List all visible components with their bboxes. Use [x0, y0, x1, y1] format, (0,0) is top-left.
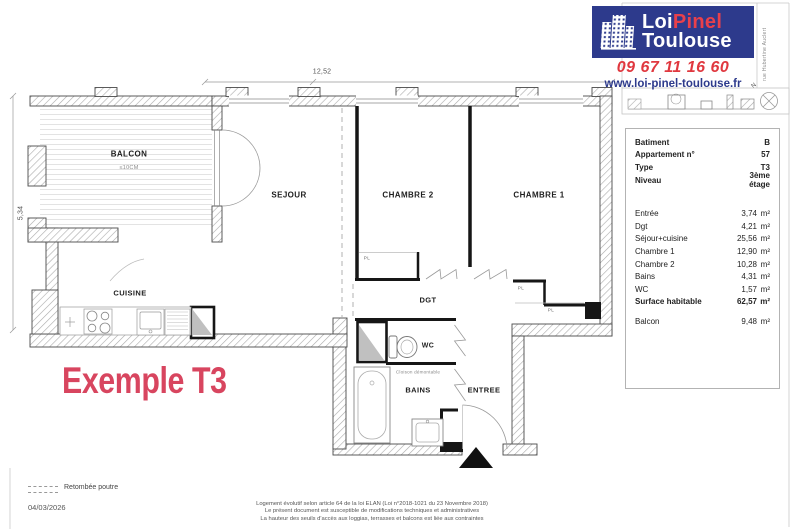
beam-dashed-lines	[342, 108, 353, 318]
disclaimer-line: Logement évolutif selon article 64 de la…	[226, 501, 518, 508]
balcon-note: ≤10CM	[119, 165, 138, 171]
dimension-top: 12,52	[313, 69, 332, 76]
area-row: Séjour+cuisine25,56m²	[635, 233, 770, 246]
room-label-sejour: SEJOUR	[271, 191, 306, 200]
room-label-chambre2: CHAMBRE 2	[382, 191, 433, 200]
brand-block: LoiPinel Toulouse 09 67 11 16 60 www.loi…	[585, 6, 761, 90]
room-label-bains: BAINS	[405, 386, 430, 395]
plan-title: Exemple T3	[62, 360, 227, 402]
building-icon	[600, 13, 636, 51]
phone-number: 09 67 11 16 60	[592, 59, 754, 77]
meta-row: Appartement n°57	[635, 149, 770, 162]
street-label: rue Hubertine Auclert	[762, 17, 768, 81]
areas-section: Entrée3,74m² Dgt4,21m² Séjour+cuisine25,…	[635, 207, 770, 327]
area-row: Chambre 210,28m²	[635, 258, 770, 271]
logo-name-part3: Toulouse	[642, 32, 732, 51]
cloison-note: Cloison démontable	[396, 370, 440, 375]
logo-text: LoiPinel Toulouse	[642, 13, 732, 51]
compass-icon	[761, 93, 778, 110]
room-label-balcon: BALCON	[111, 150, 148, 159]
total-row: Surface habitable62,57m²	[635, 296, 770, 309]
entrance-arrow	[459, 447, 493, 468]
placard-label-1: PL	[364, 256, 370, 261]
area-row: Entrée3,74m²	[635, 207, 770, 220]
room-label-cuisine: CUISINE	[113, 289, 146, 298]
meta-section: BatimentB Appartement n°57 TypeT3 Niveau…	[635, 136, 770, 186]
disclaimer: Logement évolutif selon article 64 de la…	[226, 501, 518, 523]
balcony-row: Balcon9,48m²	[635, 315, 770, 328]
room-label-entree: ENTREE	[468, 386, 501, 395]
duct-black	[585, 302, 601, 319]
legend-label: Retombée poutre	[64, 484, 118, 491]
dimension-left: 5,34	[18, 206, 25, 220]
website-url: www.loi-pinel-toulouse.fr	[585, 78, 761, 90]
placard-label-3: PL	[548, 308, 554, 313]
logo: LoiPinel Toulouse	[592, 6, 754, 58]
room-label-dgt: DGT	[419, 296, 436, 305]
meta-row: Niveau3ème étage	[635, 174, 770, 187]
date-label: 04/03/2026	[28, 503, 66, 512]
dashed-beam-icon	[28, 486, 58, 493]
meta-row: BatimentB	[635, 136, 770, 149]
room-label-chambre1: CHAMBRE 1	[513, 191, 564, 200]
entry-corner-wall	[440, 442, 463, 452]
disclaimer-line: Le présent document est susceptible de m…	[226, 508, 518, 515]
area-row: Bains4,31m²	[635, 270, 770, 283]
area-row: Chambre 112,90m²	[635, 245, 770, 258]
room-label-wc: WC	[422, 343, 434, 350]
disclaimer-line: La hauteur des seuils d'accès aux loggia…	[226, 516, 518, 523]
area-row: Dgt4,21m²	[635, 220, 770, 233]
windows	[215, 96, 584, 207]
apartment-info-panel: BatimentB Appartement n°57 TypeT3 Niveau…	[625, 128, 780, 389]
placard-label-2: PL	[518, 286, 524, 291]
area-row: WC1,57m²	[635, 283, 770, 296]
kitchen-fixtures	[60, 307, 191, 335]
